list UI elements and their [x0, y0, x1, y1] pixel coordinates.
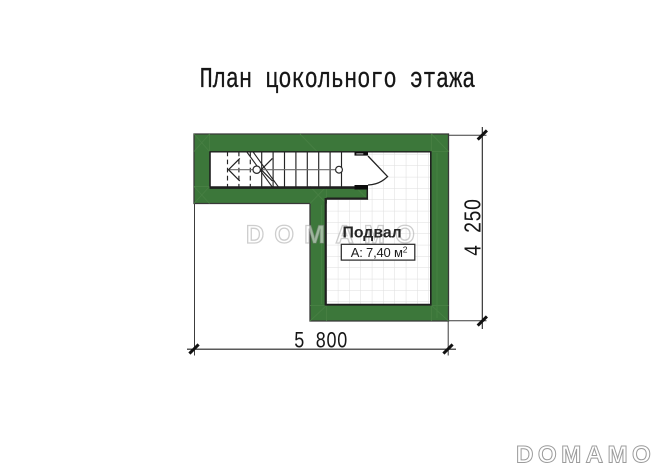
svg-text:DOMAMO: DOMAMO — [516, 442, 655, 469]
svg-text:4 250: 4 250 — [461, 199, 489, 257]
svg-text:5 800: 5 800 — [294, 329, 348, 355]
svg-text:А: 7,40 м2: А: 7,40 м2 — [351, 244, 408, 260]
svg-text:План цокольного этажа: План цокольного этажа — [200, 63, 476, 96]
svg-text:Подвал: Подвал — [343, 225, 402, 242]
